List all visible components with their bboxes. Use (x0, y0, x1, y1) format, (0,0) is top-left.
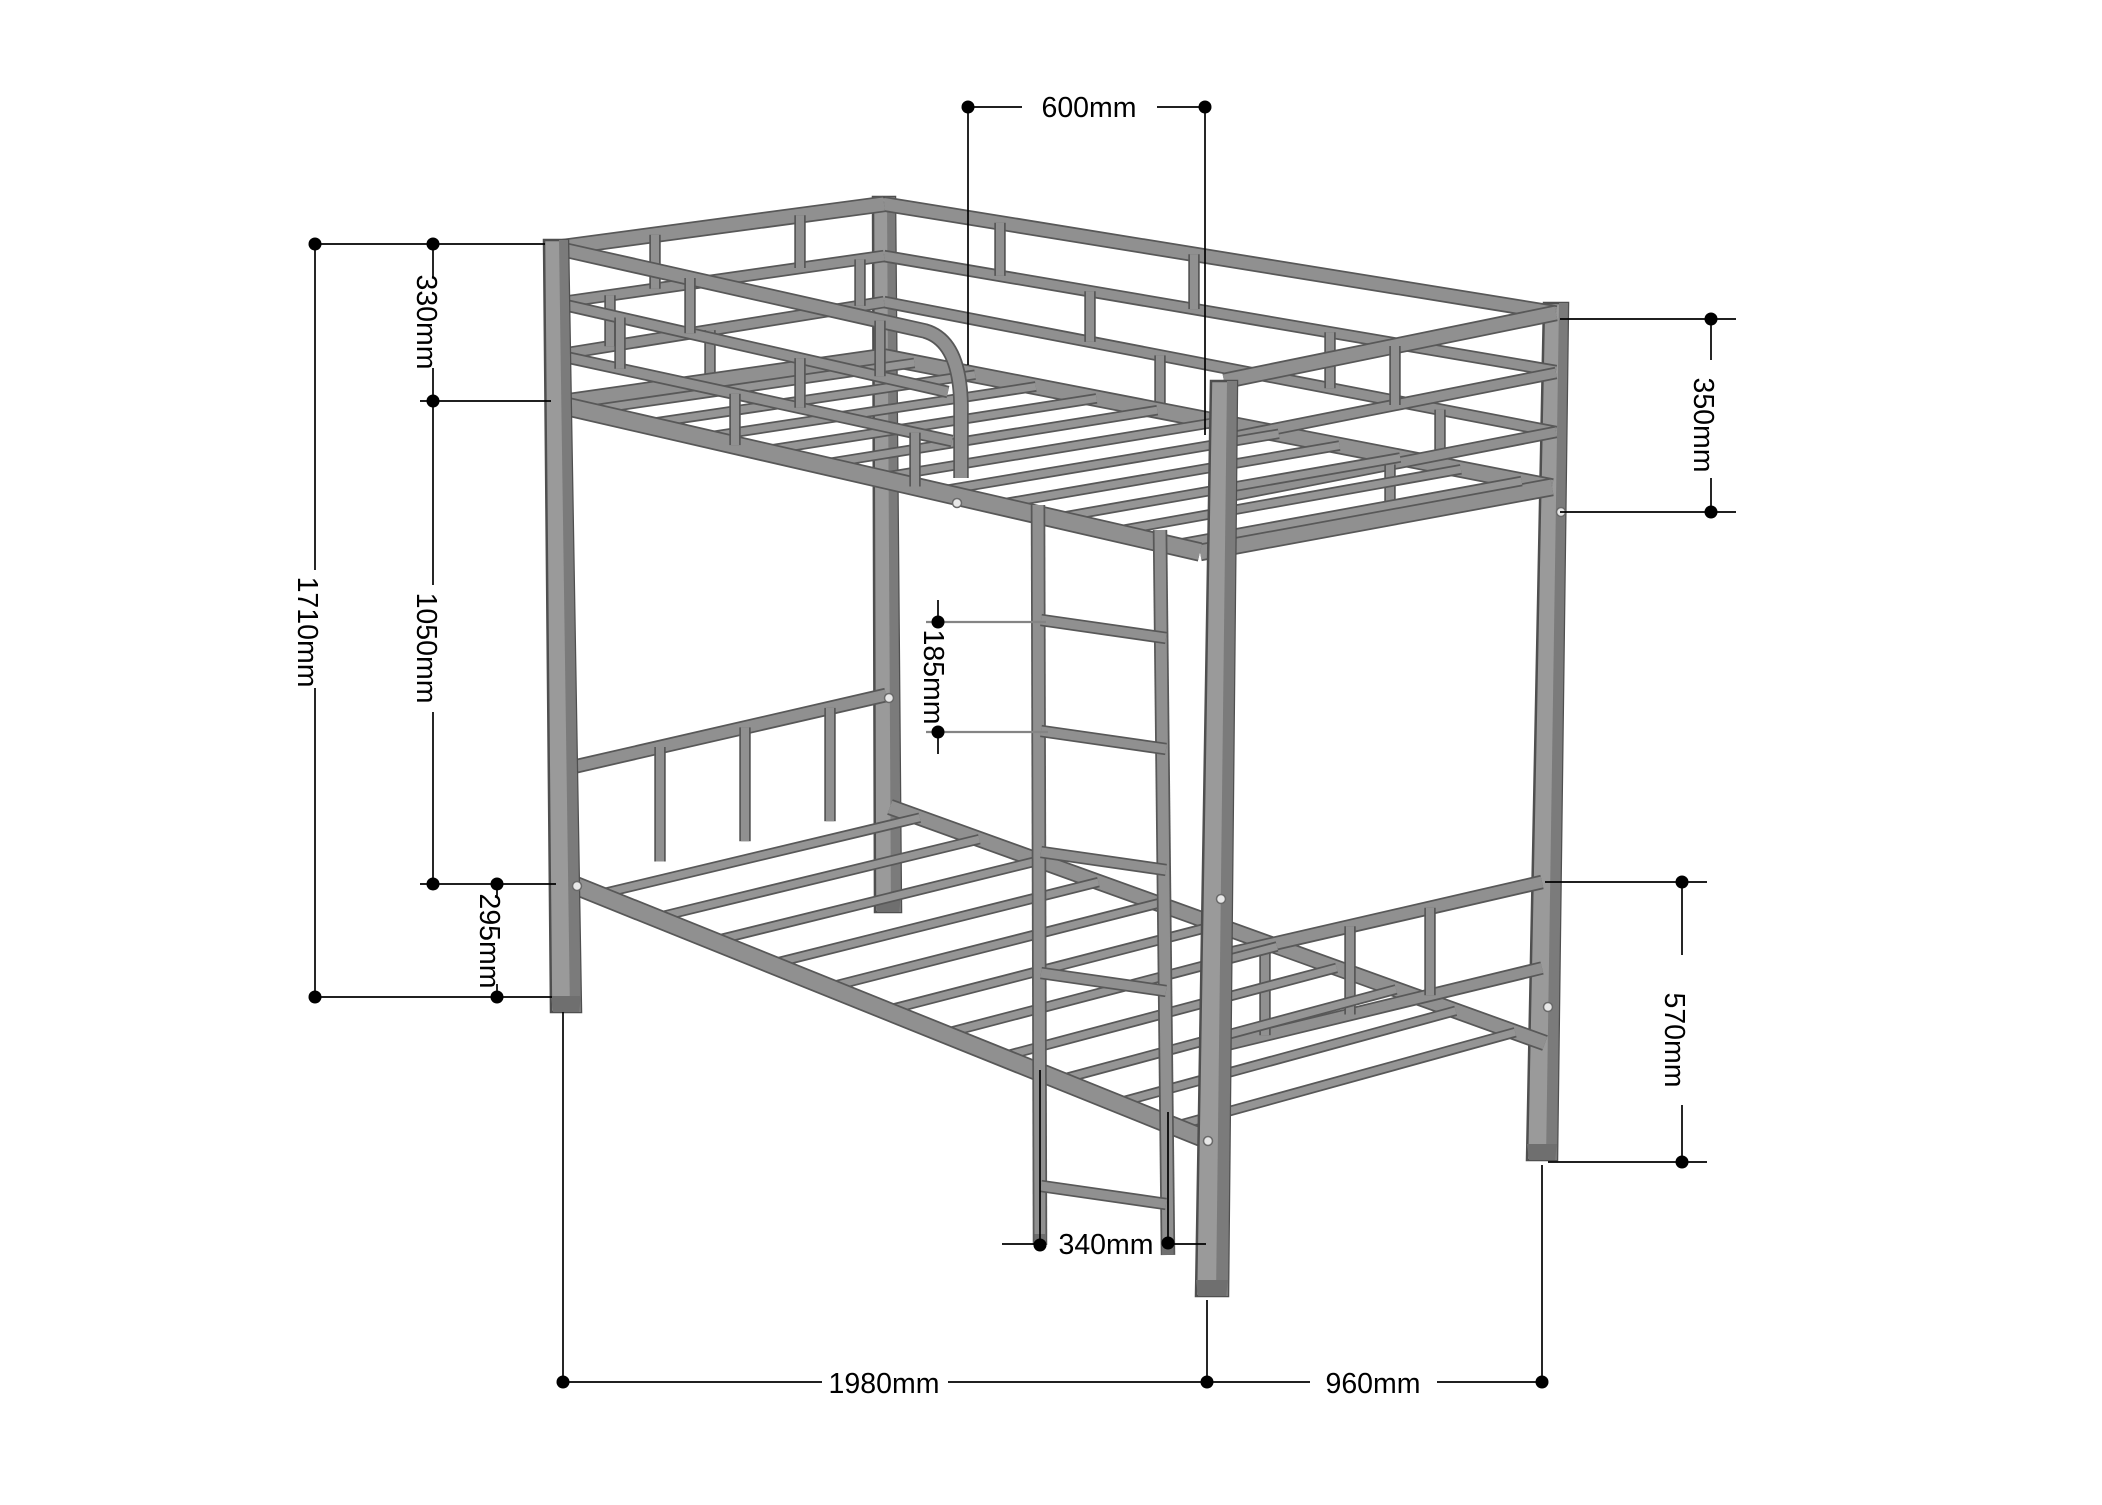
svg-text:570mm: 570mm (1658, 992, 1690, 1087)
svg-text:1710mm: 1710mm (291, 577, 323, 688)
svg-text:1050mm: 1050mm (410, 593, 442, 704)
svg-text:350mm: 350mm (1687, 377, 1719, 472)
svg-text:960mm: 960mm (1325, 1368, 1420, 1400)
svg-text:340mm: 340mm (1058, 1229, 1153, 1261)
svg-text:330mm: 330mm (410, 274, 442, 369)
svg-text:185mm: 185mm (917, 629, 949, 724)
svg-text:600mm: 600mm (1041, 92, 1136, 124)
svg-text:1980mm: 1980mm (829, 1368, 940, 1400)
svg-text:295mm: 295mm (473, 893, 505, 988)
